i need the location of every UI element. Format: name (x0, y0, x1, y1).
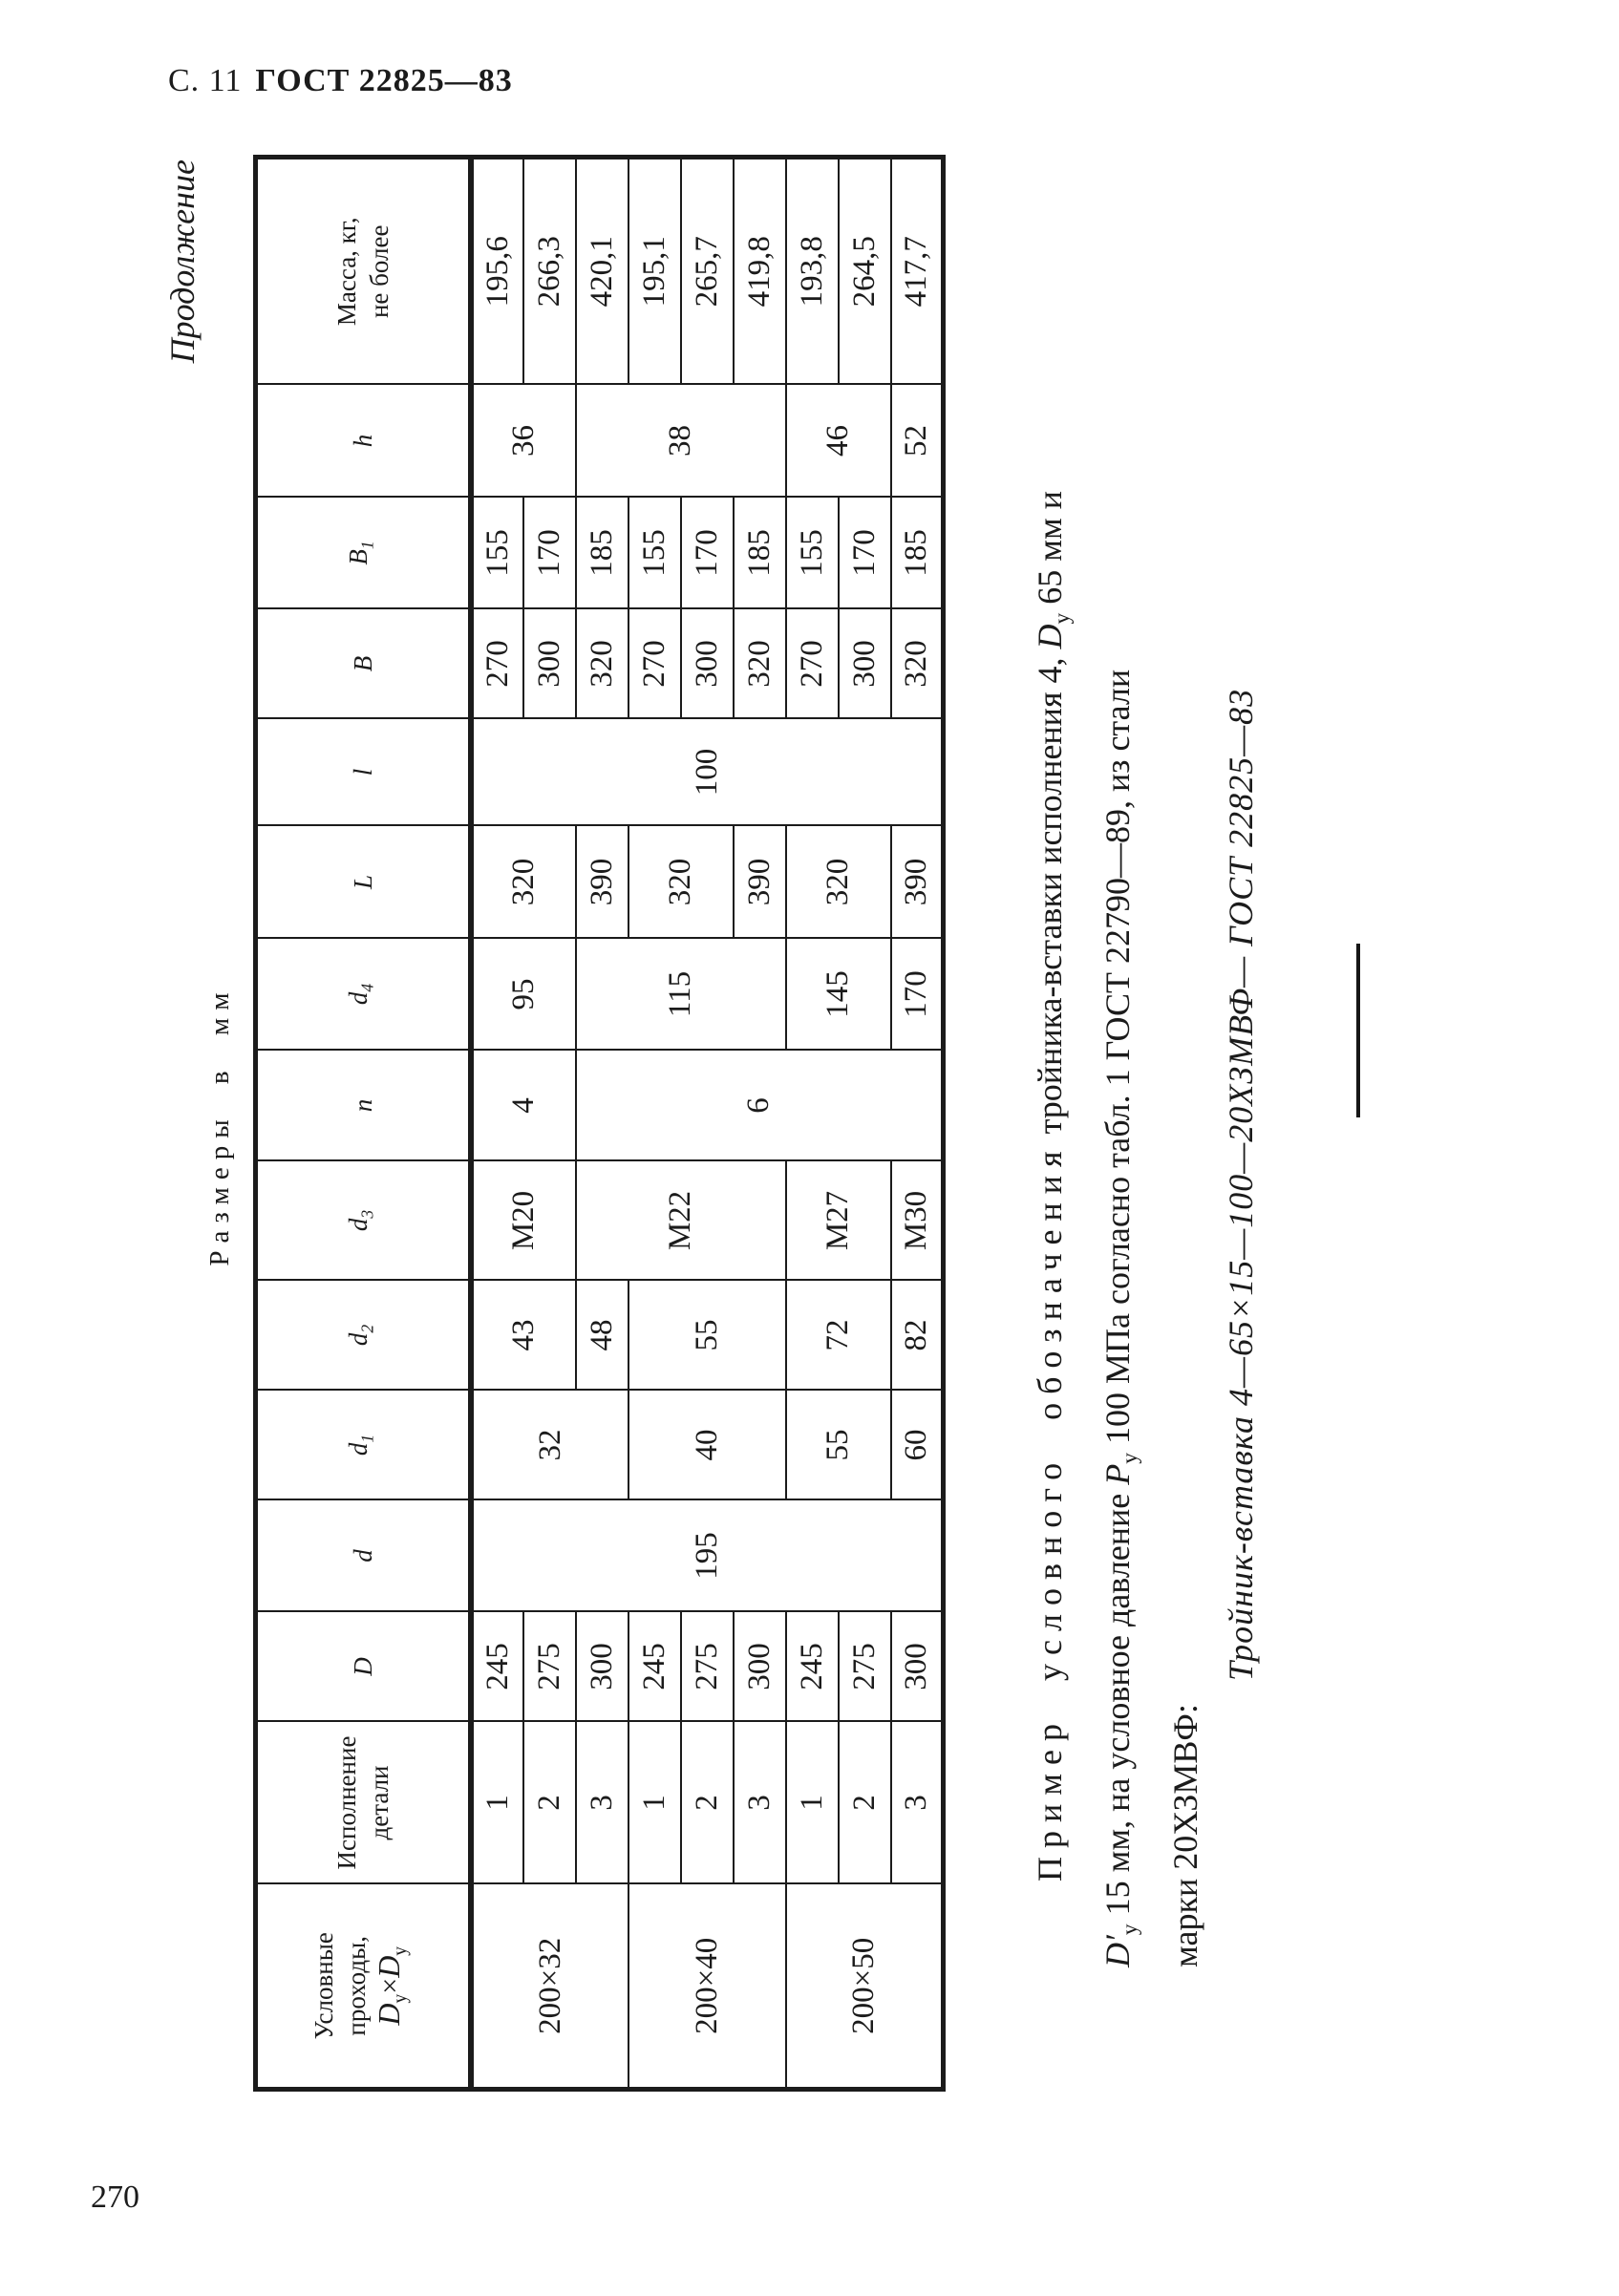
col-header-B1: B1 (256, 498, 471, 609)
table-cell: 155 (471, 498, 523, 609)
table-cell: 185 (576, 498, 628, 609)
page-header-number: С. 11 (168, 63, 242, 98)
table-cell: 200×32 (471, 1884, 628, 2090)
table-cell: 245 (628, 1612, 681, 1722)
col-header-execution: Исполнение детали (256, 1722, 471, 1884)
table-cell: М30 (891, 1161, 944, 1281)
table-cell: 170 (891, 939, 944, 1051)
table-cell: 40 (628, 1391, 786, 1500)
rotated-content-block: Продолжение Размеры в мм Условные проход… (162, 124, 1414, 2130)
table-cell: 300 (839, 609, 891, 719)
table-cell: 195,6 (471, 158, 523, 385)
col-header-d1: d1 (256, 1391, 471, 1500)
table-cell: 266,3 (523, 158, 576, 385)
col-header-D: D (256, 1612, 471, 1722)
table-cell: 48 (576, 1281, 628, 1391)
table-cell: 195,1 (628, 158, 681, 385)
table-cell: 3 (576, 1722, 628, 1884)
table-cell: 3 (891, 1722, 944, 1884)
table-cell: 52 (891, 385, 944, 498)
page-header: С. 11ГОСТ 22825—83 (168, 63, 513, 99)
col-header-d3: d3 (256, 1161, 471, 1281)
table-cell: 300 (734, 1612, 786, 1722)
nominal-bore-formula: Dу×Dу (374, 1946, 406, 2026)
table-cell: 6 (576, 1051, 944, 1161)
example-line-3: марки 20ХЗМВФ: (1158, 148, 1213, 1967)
col-header-nominal-bore: Условные проходы, Dу×Dу (256, 1884, 471, 2090)
table-cell: 320 (786, 826, 891, 939)
table-cell: 55 (628, 1281, 786, 1391)
table-cell: 170 (523, 498, 576, 609)
document-page: { "page": { "header_prefix": "С. 11", "h… (0, 0, 1619, 2296)
continuation-label: Продолжение (162, 159, 202, 2092)
table-cell: 1 (471, 1722, 523, 1884)
table-header-row: Условные проходы, Dу×Dу Исполнение детал… (256, 158, 471, 2090)
table-cell: 265,7 (681, 158, 734, 385)
table-cell: 72 (786, 1281, 891, 1391)
table-cell: 275 (523, 1612, 576, 1722)
example-designation-line: Тройник-вставка 4—65×15—100—20ХЗМВФ— ГОС… (1213, 148, 1268, 1681)
table-cell: 200×40 (628, 1884, 786, 2090)
table-cell: 2 (523, 1722, 576, 1884)
table-cell: 320 (628, 826, 734, 939)
table-cell: 193,8 (786, 158, 839, 385)
table-cell: 38 (576, 385, 786, 498)
table-cell: 320 (576, 609, 628, 719)
table-cell: М22 (576, 1161, 786, 1281)
col-header-mass: Масса, кг, не более (256, 158, 471, 385)
table-cell: 100 (471, 719, 944, 826)
table-cell: 245 (786, 1612, 839, 1722)
table-cell: 2 (681, 1722, 734, 1884)
table-cell: 2 (839, 1722, 891, 1884)
table-cell: 155 (628, 498, 681, 609)
table-cell: М20 (471, 1161, 576, 1281)
dimensions-in-mm-label: Размеры в мм (204, 159, 236, 2092)
table-cell: 46 (786, 385, 891, 498)
table-cell: 82 (891, 1281, 944, 1391)
table-cell: 264,5 (839, 158, 891, 385)
table-cell: 320 (734, 609, 786, 719)
col-header-h: h (256, 385, 471, 498)
table-cell: 300 (681, 609, 734, 719)
table-row: 200×32 1 245 195 32 43 М20 4 95 320 100 … (471, 158, 523, 2090)
table-cell: 300 (891, 1612, 944, 1722)
table-cell: 43 (471, 1281, 576, 1391)
col-header-l: l (256, 719, 471, 826)
table-cell: 1 (786, 1722, 839, 1884)
table-cell: 390 (891, 826, 944, 939)
col-header-d4: d4 (256, 939, 471, 1051)
example-line-1: Пример условного обозначения тройника-вс… (1022, 148, 1090, 1881)
example-line-2: D′у 15 мм, на условное давление Ру 100 М… (1090, 148, 1158, 1967)
table-cell: 170 (839, 498, 891, 609)
table-cell: 320 (891, 609, 944, 719)
table-cell: 275 (839, 1612, 891, 1722)
col-header-L: L (256, 826, 471, 939)
table-cell: 36 (471, 385, 576, 498)
table-cell: 185 (891, 498, 944, 609)
table-cell: 275 (681, 1612, 734, 1722)
table-cell: 417,7 (891, 158, 944, 385)
col-header-d: d (256, 1500, 471, 1612)
page-number: 270 (91, 2179, 139, 2216)
table-cell: 3 (734, 1722, 786, 1884)
table-cell: 320 (471, 826, 576, 939)
table-cell: 145 (786, 939, 891, 1051)
table-cell: 95 (471, 939, 576, 1051)
table-cell: 170 (681, 498, 734, 609)
page-header-gost: ГОСТ 22825—83 (255, 63, 512, 98)
document-sheet: С. 11ГОСТ 22825—83 Продолжение Размеры в… (0, 0, 1619, 2296)
table-cell: 420,1 (576, 158, 628, 385)
col-header-n: n (256, 1051, 471, 1161)
table-cell: 185 (734, 498, 786, 609)
table-cell: 390 (734, 826, 786, 939)
separator-rule (1356, 944, 1360, 1117)
designation-example-block: Пример условного обозначения тройника-вс… (1022, 148, 1268, 1967)
table-row: 3 300 48 М22 6 115 390 320 185 38 420,1 (576, 158, 628, 2090)
table-cell: 4 (471, 1051, 576, 1161)
table-cell: 270 (628, 609, 681, 719)
table-cell: 300 (576, 1612, 628, 1722)
table-cell: 55 (786, 1391, 891, 1500)
table-cell: 419,8 (734, 158, 786, 385)
col-header-d2: d2 (256, 1281, 471, 1391)
table-cell: 245 (471, 1612, 523, 1722)
table-cell: 200×50 (786, 1884, 944, 2090)
table-cell: 195 (471, 1500, 944, 1612)
table-cell: 270 (786, 609, 839, 719)
table-cell: 390 (576, 826, 628, 939)
col-header-B: B (256, 609, 471, 719)
table-cell: 270 (471, 609, 523, 719)
table-cell: 32 (471, 1391, 628, 1500)
table-cell: 300 (523, 609, 576, 719)
table-cell: М27 (786, 1161, 891, 1281)
table-cell: 155 (786, 498, 839, 609)
table-cell: 115 (576, 939, 786, 1051)
dimensions-table: Условные проходы, Dу×Dу Исполнение детал… (253, 155, 946, 2092)
table-cell: 1 (628, 1722, 681, 1884)
table-cell: 60 (891, 1391, 944, 1500)
